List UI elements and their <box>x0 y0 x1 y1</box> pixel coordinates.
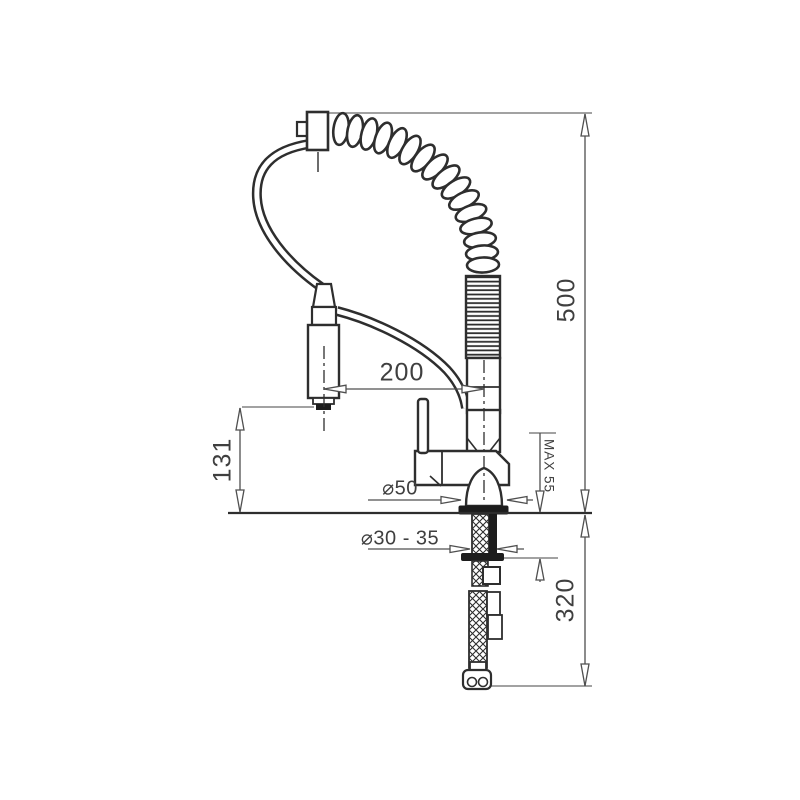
dim-label-spout-clearance: 131 <box>209 438 238 483</box>
dimension-lines <box>240 114 585 686</box>
faucet-technical-drawing <box>0 0 800 800</box>
extension-lines <box>242 113 592 686</box>
spray-head <box>308 284 339 431</box>
dim-label-base-diameter: ⌀50 <box>382 476 418 501</box>
pullout-hose <box>257 144 321 287</box>
dimension-arrows <box>236 114 589 686</box>
lever-handle <box>418 399 428 453</box>
dim-label-total-height: 500 <box>553 278 582 323</box>
spring-coil <box>331 112 499 273</box>
technical-drawing-canvas: 500 320 131 200 MAX 55 ⌀50 ⌀30 - 35 <box>0 0 800 800</box>
dim-label-hose-below-counter: 320 <box>552 578 581 623</box>
mounting-nut <box>483 567 500 584</box>
dim-label-spout-reach: 200 <box>380 359 425 388</box>
dim-label-max-counter-thickness: MAX 55 <box>542 439 557 493</box>
dim-label-mounting-hole-diameter: ⌀30 - 35 <box>361 526 439 551</box>
ribbed-spring-section <box>466 276 500 358</box>
clamp-washer <box>461 553 504 561</box>
supply-hose <box>463 591 502 689</box>
